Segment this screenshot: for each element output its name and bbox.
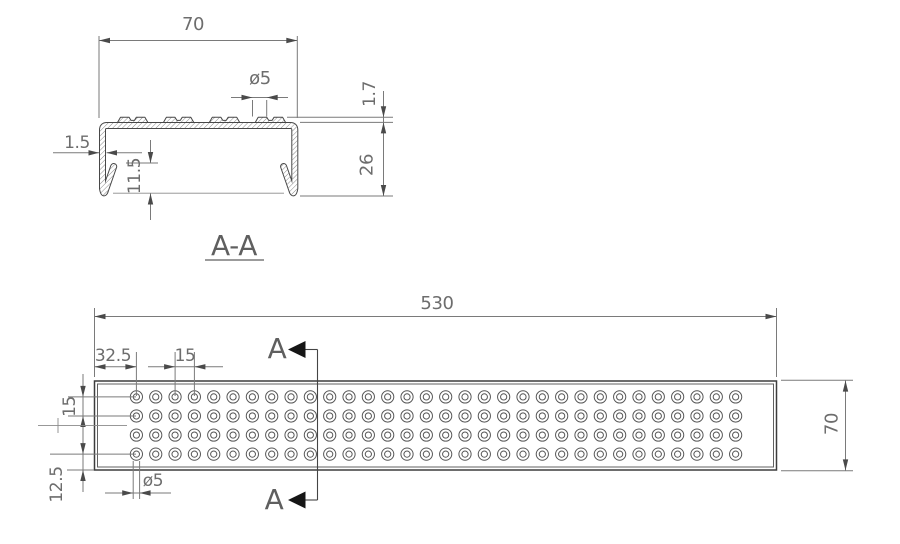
hole-countersink: [169, 410, 181, 422]
hole-bore: [365, 432, 371, 438]
hole-bore: [675, 432, 681, 438]
hole-countersink: [536, 429, 548, 441]
hole-bore: [675, 413, 681, 419]
arrow-height-bottom: [381, 185, 386, 196]
hole-countersink: [459, 448, 471, 460]
hole-bore: [288, 432, 294, 438]
dim-label-hole-pitch: 15: [175, 346, 196, 366]
hole-countersink: [246, 448, 258, 460]
hole-countersink: [633, 448, 645, 460]
hole-bore: [636, 413, 642, 419]
hole-countersink: [556, 448, 568, 460]
hole-countersink: [285, 410, 297, 422]
dim-row-pitch-and-bottom: 15 12.5: [38, 374, 136, 503]
arrow-right: [766, 314, 777, 319]
hole-bore: [249, 413, 255, 419]
arrow-bottom: [843, 459, 848, 470]
hole-countersink: [130, 429, 142, 441]
hole-bore: [269, 394, 275, 400]
hole-countersink: [362, 410, 374, 422]
hole-countersink: [343, 410, 355, 422]
hole-bore: [443, 394, 449, 400]
hole-countersink: [188, 448, 200, 460]
hole-countersink: [382, 448, 394, 460]
hole-bore: [153, 432, 159, 438]
hole-bore: [307, 451, 313, 457]
arrow-rib-bottom: [381, 122, 386, 133]
hole-countersink: [285, 391, 297, 403]
dim-label-plan-hole: ø5: [143, 471, 163, 491]
hole-bore: [153, 451, 159, 457]
arrow-top: [843, 381, 848, 392]
section-arrow-bottom: [288, 492, 306, 509]
plate-inner-line: [98, 384, 774, 467]
hole-bore: [675, 394, 681, 400]
hole-countersink: [401, 410, 413, 422]
hole-bore: [443, 451, 449, 457]
hole-countersink: [440, 410, 452, 422]
hole-countersink: [208, 448, 220, 460]
hole-bore: [539, 432, 545, 438]
tread-rib: [255, 117, 285, 122]
hole-countersink: [324, 391, 336, 403]
hole-countersink: [324, 429, 336, 441]
hole-countersink: [575, 410, 587, 422]
hole-countersink: [691, 410, 703, 422]
hole-countersink: [594, 391, 606, 403]
hole-countersink: [594, 448, 606, 460]
hole-bore: [269, 432, 275, 438]
hole-bore: [288, 394, 294, 400]
tread-rib: [209, 117, 239, 122]
hole-bore: [307, 413, 313, 419]
hole-bore: [636, 394, 642, 400]
arrow-right: [194, 364, 205, 369]
hole-countersink: [440, 391, 452, 403]
hole-bore: [133, 432, 139, 438]
hole-countersink: [246, 391, 258, 403]
section-label: A-A: [211, 229, 257, 262]
hole-bore: [211, 451, 217, 457]
dim-plate-width: 70: [781, 380, 853, 471]
dim-section-width: 70: [99, 14, 297, 118]
hole-countersink: [652, 448, 664, 460]
hole-countersink: [246, 429, 258, 441]
dim-label-hem: 11.5: [125, 158, 145, 194]
hole-countersink: [304, 448, 316, 460]
hole-countersink: [478, 410, 490, 422]
hole-bore: [423, 432, 429, 438]
hole-bore: [365, 394, 371, 400]
hole-bore: [385, 432, 391, 438]
hole-bore: [636, 432, 642, 438]
hole-countersink: [266, 429, 278, 441]
hole-bore: [675, 451, 681, 457]
hole-bore: [578, 432, 584, 438]
hole-bore: [636, 451, 642, 457]
hole-countersink: [208, 391, 220, 403]
hole-countersink: [652, 429, 664, 441]
hole-countersink: [710, 429, 722, 441]
hole-countersink: [440, 429, 452, 441]
hole-bore: [346, 413, 352, 419]
hole-countersink: [633, 410, 645, 422]
hole-bore: [462, 432, 468, 438]
hole-bore: [307, 432, 313, 438]
tread-rib: [118, 117, 148, 122]
hole-bore: [249, 432, 255, 438]
hole-countersink: [536, 391, 548, 403]
hole-bore: [346, 432, 352, 438]
hole-bore: [520, 451, 526, 457]
hole-countersink: [266, 448, 278, 460]
hole-bore: [481, 394, 487, 400]
hole-bore: [423, 451, 429, 457]
plan-view: 530 32.5 15: [38, 293, 853, 516]
hole-bore: [501, 394, 507, 400]
section-arrow-top: [288, 341, 306, 358]
hole-bore: [481, 432, 487, 438]
hole-bore: [559, 413, 565, 419]
hole-bore: [443, 432, 449, 438]
hole-bore: [404, 413, 410, 419]
hole-countersink: [324, 448, 336, 460]
hole-bore: [404, 451, 410, 457]
hole-countersink: [710, 410, 722, 422]
hole-countersink: [691, 391, 703, 403]
hole-countersink: [304, 410, 316, 422]
hole-countersink: [246, 410, 258, 422]
tread-rib: [163, 117, 193, 122]
hole-bore: [191, 413, 197, 419]
hole-bore: [733, 432, 739, 438]
dim-label-end-margin: 32.5: [95, 346, 131, 366]
hole-bore: [617, 451, 623, 457]
hole-bore: [385, 413, 391, 419]
hole-countersink: [343, 391, 355, 403]
dim-label-row-pitch: 15: [60, 396, 80, 417]
hole-countersink: [575, 391, 587, 403]
hole-countersink: [324, 410, 336, 422]
hole-bore: [443, 413, 449, 419]
hole-countersink: [633, 391, 645, 403]
hole-bore: [269, 451, 275, 457]
hole-bore: [230, 394, 236, 400]
arrow-row1: [80, 386, 85, 397]
hole-countersink: [575, 429, 587, 441]
hole-bore: [713, 432, 719, 438]
hole-countersink: [710, 448, 722, 460]
hole-bore: [172, 432, 178, 438]
hole-countersink: [517, 429, 529, 441]
hole-bore: [617, 432, 623, 438]
hole-bore: [211, 432, 217, 438]
arrow-outer: [89, 150, 100, 155]
hole-countersink: [652, 410, 664, 422]
hole-bore: [423, 394, 429, 400]
hole-countersink: [672, 448, 684, 460]
arrow-bottom-edge: [80, 470, 85, 481]
hole-bore: [288, 413, 294, 419]
hole-countersink: [440, 448, 452, 460]
hole-bore: [694, 394, 700, 400]
arrow-inner: [107, 150, 118, 155]
drawing-sheet: 70 ø5 1.5 11.5: [0, 0, 900, 544]
hole-bore: [211, 394, 217, 400]
hole-bore: [597, 432, 603, 438]
hole-countersink: [285, 429, 297, 441]
hole-bore: [327, 432, 333, 438]
hole-bore: [655, 394, 661, 400]
hole-countersink: [536, 448, 548, 460]
hole-countersink: [459, 429, 471, 441]
arrow-left: [164, 364, 175, 369]
arrow-bottom: [148, 194, 153, 205]
hole-countersink: [150, 391, 162, 403]
hole-countersink: [730, 391, 742, 403]
hole-countersink: [362, 391, 374, 403]
hole-bore: [481, 413, 487, 419]
hole-bore: [520, 413, 526, 419]
hole-countersink: [672, 391, 684, 403]
dim-label-height: 26: [356, 154, 377, 176]
arrow-row4: [80, 443, 85, 454]
hole-bore: [520, 394, 526, 400]
hole-countersink: [459, 391, 471, 403]
drawing-canvas: 70 ø5 1.5 11.5: [0, 0, 900, 544]
hole-countersink: [498, 410, 510, 422]
hole-bore: [694, 451, 700, 457]
hole-countersink: [498, 391, 510, 403]
section-letter-top: A: [268, 332, 287, 365]
dim-wall-thickness: 1.5: [53, 133, 142, 156]
hole-bore: [713, 413, 719, 419]
hole-countersink: [150, 410, 162, 422]
hole-countersink: [710, 391, 722, 403]
hole-bore: [597, 413, 603, 419]
hole-bore: [733, 413, 739, 419]
hole-countersink: [517, 448, 529, 460]
hole-bore: [462, 451, 468, 457]
arrow-left: [95, 314, 106, 319]
hole-countersink: [691, 448, 703, 460]
dim-section-hole: ø5: [231, 68, 288, 117]
dim-length: 530: [95, 293, 777, 377]
hole-bore: [733, 394, 739, 400]
hole-bore: [346, 394, 352, 400]
section-title: A-A: [205, 229, 264, 262]
hole-countersink: [420, 391, 432, 403]
hole-countersink: [285, 448, 297, 460]
hole-bore: [617, 394, 623, 400]
hole-bore: [230, 432, 236, 438]
hole-bore: [249, 394, 255, 400]
hole-bore: [172, 413, 178, 419]
hole-countersink: [343, 448, 355, 460]
hole-countersink: [150, 448, 162, 460]
section-view: 70 ø5 1.5 11.5: [53, 14, 393, 262]
hole-countersink: [652, 391, 664, 403]
hole-countersink: [556, 429, 568, 441]
hole-countersink: [517, 410, 529, 422]
hole-bore: [559, 432, 565, 438]
hole-bore: [385, 394, 391, 400]
hole-countersink: [730, 429, 742, 441]
hole-bore: [307, 394, 313, 400]
hole-bore: [153, 413, 159, 419]
hole-countersink: [459, 410, 471, 422]
hole-bore: [713, 451, 719, 457]
hole-countersink: [227, 391, 239, 403]
hole-bore: [346, 451, 352, 457]
hole-bore: [230, 413, 236, 419]
hole-bore: [211, 413, 217, 419]
dim-label-plate-width: 70: [821, 413, 842, 435]
hole-countersink: [420, 429, 432, 441]
dim-end-margin: 32.5: [95, 346, 137, 396]
arrow-rib-top: [381, 106, 386, 117]
hole-countersink: [304, 429, 316, 441]
hole-bore: [597, 451, 603, 457]
hole-bore: [501, 451, 507, 457]
hole-countersink: [517, 391, 529, 403]
hole-countersink: [536, 410, 548, 422]
hole-bore: [501, 413, 507, 419]
arrow-right: [267, 95, 278, 100]
hole-countersink: [150, 429, 162, 441]
dim-label-rib-height: 1.7: [360, 81, 380, 107]
hole-countersink: [614, 448, 626, 460]
hole-bore: [694, 432, 700, 438]
hole-countersink: [556, 391, 568, 403]
hole-countersink: [498, 429, 510, 441]
hole-countersink: [208, 410, 220, 422]
hole-countersink: [633, 429, 645, 441]
hole-countersink: [188, 429, 200, 441]
profile-tread-ribs: [118, 117, 286, 122]
hole-countersink: [614, 429, 626, 441]
hole-bore: [288, 451, 294, 457]
dim-label-bottom-margin: 12.5: [47, 466, 67, 502]
hole-countersink: [498, 448, 510, 460]
hole-countersink: [208, 429, 220, 441]
hole-bore: [153, 394, 159, 400]
arrow-left: [122, 490, 133, 495]
hole-bore: [172, 451, 178, 457]
section-cut-line: A A: [265, 332, 318, 516]
arrow-right: [286, 38, 297, 43]
hole-bore: [423, 413, 429, 419]
arrow-right: [140, 490, 151, 495]
hole-countersink: [478, 429, 490, 441]
hole-bore: [559, 394, 565, 400]
arrow-left: [99, 38, 110, 43]
hole-bore: [655, 413, 661, 419]
hole-countersink: [575, 448, 587, 460]
hole-countersink: [420, 410, 432, 422]
hole-countersink: [401, 429, 413, 441]
hole-bore: [733, 451, 739, 457]
hole-bore: [694, 413, 700, 419]
hole-bore: [501, 432, 507, 438]
hole-countersink: [730, 410, 742, 422]
hole-countersink: [362, 448, 374, 460]
hole-countersink: [227, 410, 239, 422]
hole-bore: [462, 394, 468, 400]
dim-hole-pitch: 15: [148, 346, 223, 396]
hole-countersink: [401, 448, 413, 460]
hole-bore: [462, 413, 468, 419]
hole-countersink: [672, 429, 684, 441]
hole-bore: [249, 451, 255, 457]
hole-bore: [327, 451, 333, 457]
dim-hem-height: 11.5: [125, 140, 158, 220]
hole-countersink: [362, 429, 374, 441]
hole-countersink: [304, 391, 316, 403]
arrow-top: [148, 152, 153, 163]
hole-bore: [539, 451, 545, 457]
hole-countersink: [401, 391, 413, 403]
dim-label-hole: ø5: [249, 68, 271, 89]
hole-countersink: [478, 448, 490, 460]
hole-grid: [130, 391, 741, 460]
hole-bore: [520, 432, 526, 438]
hole-bore: [230, 451, 236, 457]
dim-label-length: 530: [420, 293, 453, 314]
hole-countersink: [478, 391, 490, 403]
hole-bore: [597, 394, 603, 400]
hole-bore: [191, 451, 197, 457]
hole-bore: [655, 451, 661, 457]
hole-countersink: [266, 391, 278, 403]
hole-countersink: [343, 429, 355, 441]
hole-bore: [481, 451, 487, 457]
hole-countersink: [556, 410, 568, 422]
dim-label-width: 70: [182, 14, 204, 35]
hole-countersink: [594, 410, 606, 422]
dim-rib-and-height: 1.7 26: [287, 81, 393, 196]
hole-countersink: [227, 429, 239, 441]
hole-countersink: [382, 391, 394, 403]
hole-countersink: [614, 391, 626, 403]
hole-countersink: [188, 410, 200, 422]
arrow-left: [242, 95, 253, 100]
hole-countersink: [594, 429, 606, 441]
hole-countersink: [691, 429, 703, 441]
hole-bore: [539, 413, 545, 419]
hole-bore: [327, 394, 333, 400]
hole-countersink: [169, 448, 181, 460]
hole-bore: [327, 413, 333, 419]
hole-countersink: [382, 429, 394, 441]
hole-bore: [617, 413, 623, 419]
hole-bore: [269, 413, 275, 419]
hole-countersink: [730, 448, 742, 460]
hole-countersink: [227, 448, 239, 460]
hole-countersink: [614, 410, 626, 422]
hole-bore: [404, 394, 410, 400]
hole-bore: [404, 432, 410, 438]
hole-bore: [539, 394, 545, 400]
hole-bore: [365, 413, 371, 419]
hole-bore: [559, 451, 565, 457]
section-letter-bottom: A: [265, 483, 284, 516]
hole-countersink: [672, 410, 684, 422]
hole-bore: [578, 451, 584, 457]
hole-bore: [655, 432, 661, 438]
hole-countersink: [420, 448, 432, 460]
hole-countersink: [169, 429, 181, 441]
